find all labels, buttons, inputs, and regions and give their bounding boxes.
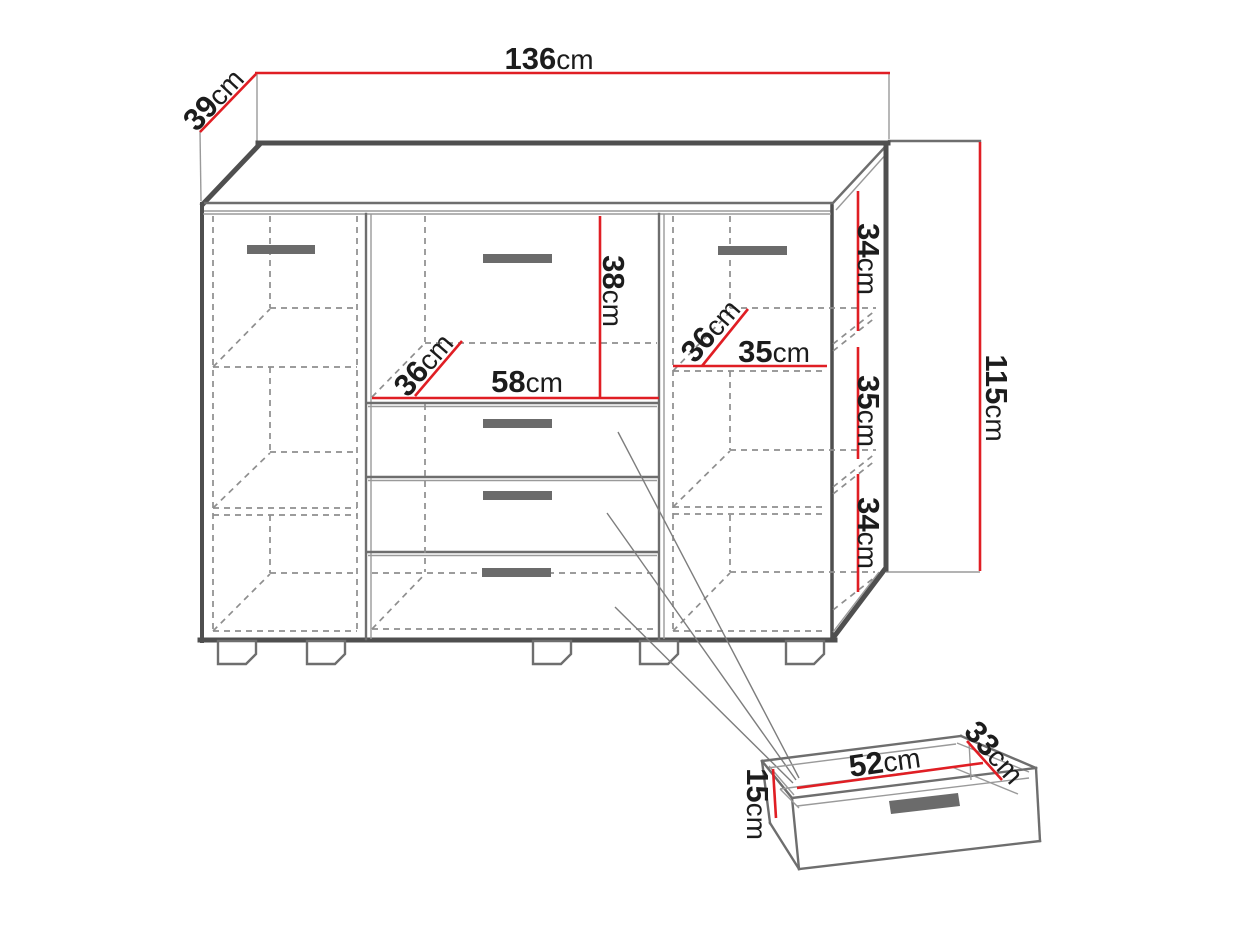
dim-drawer-width-label: 52cm bbox=[847, 739, 923, 784]
dim-overall-width-label: 136cm bbox=[504, 41, 593, 76]
cabinet-top-panel bbox=[202, 143, 888, 211]
handles bbox=[247, 245, 787, 577]
dimension-labels: 136cm 39cm 115cm 38cm 58cm 36cm 36cm 35c… bbox=[176, 41, 1032, 840]
dim-top-depth-label: 39cm bbox=[176, 61, 251, 137]
dim-middle-opening-height-label: 38cm bbox=[596, 255, 631, 327]
second-drawer-handle bbox=[483, 419, 552, 428]
left-door-handle bbox=[247, 245, 315, 254]
furniture-dimension-diagram: 136cm 39cm 115cm 38cm 58cm 36cm 36cm 35c… bbox=[0, 0, 1241, 931]
detail-drawer-handle bbox=[889, 793, 960, 814]
third-drawer-handle bbox=[483, 491, 552, 500]
dim-right-middle-compartment-label: 35cm bbox=[851, 375, 886, 447]
dim-drawer-height-label: 15cm bbox=[740, 768, 775, 840]
top-drawer-handle bbox=[483, 254, 552, 263]
dim-right-bottom-compartment-label: 34cm bbox=[851, 497, 886, 569]
sideboard-technical-drawing: 136cm 39cm 115cm 38cm 58cm 36cm 36cm 35c… bbox=[0, 0, 1241, 931]
dim-middle-opening-width-label: 58cm bbox=[491, 364, 563, 399]
dim-right-opening-width-label: 35cm bbox=[738, 334, 810, 369]
dim-middle-opening-depth-label: 36cm bbox=[387, 326, 461, 403]
projection-lines bbox=[607, 432, 799, 783]
dim-right-top-compartment-label: 34cm bbox=[851, 223, 886, 295]
left-compartment-hidden-lines bbox=[213, 216, 357, 631]
right-compartment-hidden-lines bbox=[673, 216, 876, 631]
bottom-drawer-handle bbox=[482, 568, 551, 577]
right-door-handle bbox=[718, 246, 787, 255]
dim-overall-height-label: 115cm bbox=[979, 354, 1014, 441]
